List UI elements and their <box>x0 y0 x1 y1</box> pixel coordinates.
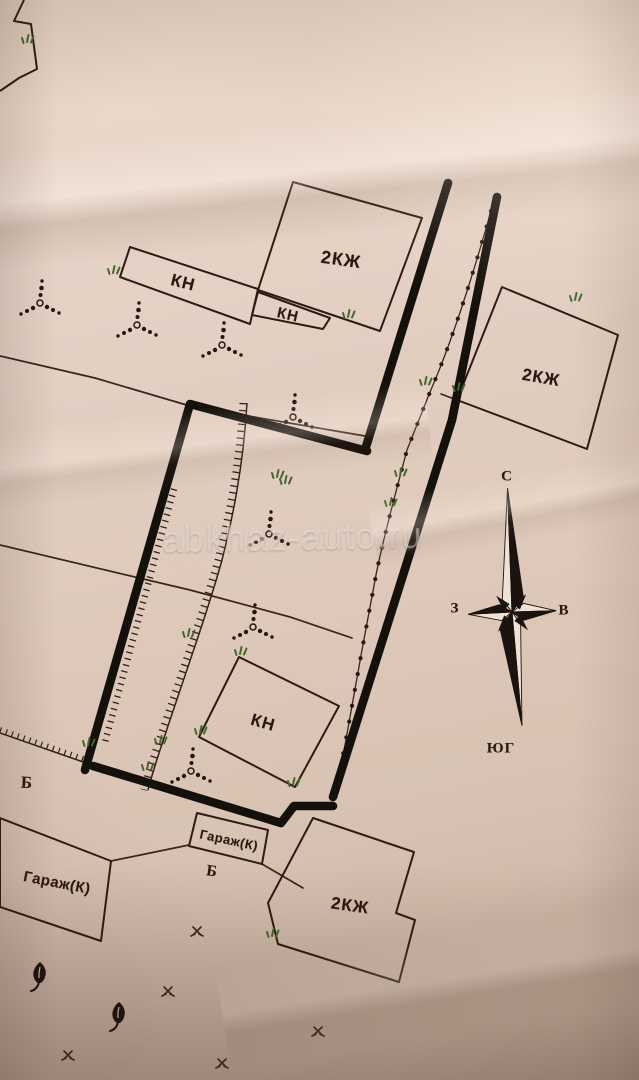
leaf-tree-symbol <box>31 962 46 991</box>
compass-east-label: В <box>558 603 569 620</box>
grass-symbol <box>216 1059 228 1068</box>
grass-symbol <box>191 927 203 936</box>
fence-hatched-center <box>148 403 247 790</box>
watermark-text: abkhaz-auto.ru <box>162 515 424 562</box>
green-shrub-symbol <box>272 470 284 478</box>
leaf-tree-symbol <box>110 1002 125 1031</box>
plot-boundary-thick-lines <box>85 183 497 823</box>
tree-dots-symbol <box>201 321 242 357</box>
green-shrub-symbol <box>420 377 432 385</box>
grass-symbol <box>312 1027 324 1036</box>
green-shrub-symbol <box>108 266 120 274</box>
fence-hatched-southwest <box>0 733 86 763</box>
tree-dots-symbol <box>232 603 273 639</box>
thick-line-west <box>85 404 367 770</box>
grass-symbol <box>62 1051 74 1060</box>
grass-symbols <box>62 927 324 1068</box>
green-shrub-symbol <box>235 647 247 655</box>
compass-south-label: ЮГ <box>487 741 515 758</box>
point-marker-b-left: Б <box>20 773 33 794</box>
tree-dots-symbol <box>19 279 60 315</box>
thick-line-north <box>365 183 448 450</box>
grass-symbol <box>162 987 174 996</box>
thick-line-south <box>93 766 333 823</box>
building-partial-topleft <box>0 0 37 91</box>
compass-north-label: С <box>501 469 513 486</box>
parcel-line-garage-link <box>111 845 189 861</box>
green-shrub-symbol <box>288 778 300 786</box>
building-outlines <box>0 0 618 982</box>
tree-dots-symbol <box>170 747 211 783</box>
point-marker-b-center: Б <box>205 862 219 881</box>
green-shrub-symbol <box>183 629 195 637</box>
fence-hatched-lines <box>0 403 247 790</box>
fence-hatched-center-ticks <box>144 403 243 790</box>
green-shrub-symbol <box>267 929 279 937</box>
scanned-site-plan-photo: КН 2КЖ КН 2КЖ КН Гараж(К) Гараж(К) 2КЖ Б… <box>0 0 639 1080</box>
compass-rose-icon <box>462 486 562 728</box>
leaf-tree-symbols <box>31 962 125 1031</box>
compass-west-label: З <box>451 601 460 618</box>
green-shrub-symbol <box>395 468 407 476</box>
fence-hatched-southwest-ticks <box>0 730 86 760</box>
green-shrub-symbol <box>570 293 582 301</box>
tree-dots-symbol <box>116 301 157 337</box>
green-shrub-symbol <box>343 310 355 318</box>
